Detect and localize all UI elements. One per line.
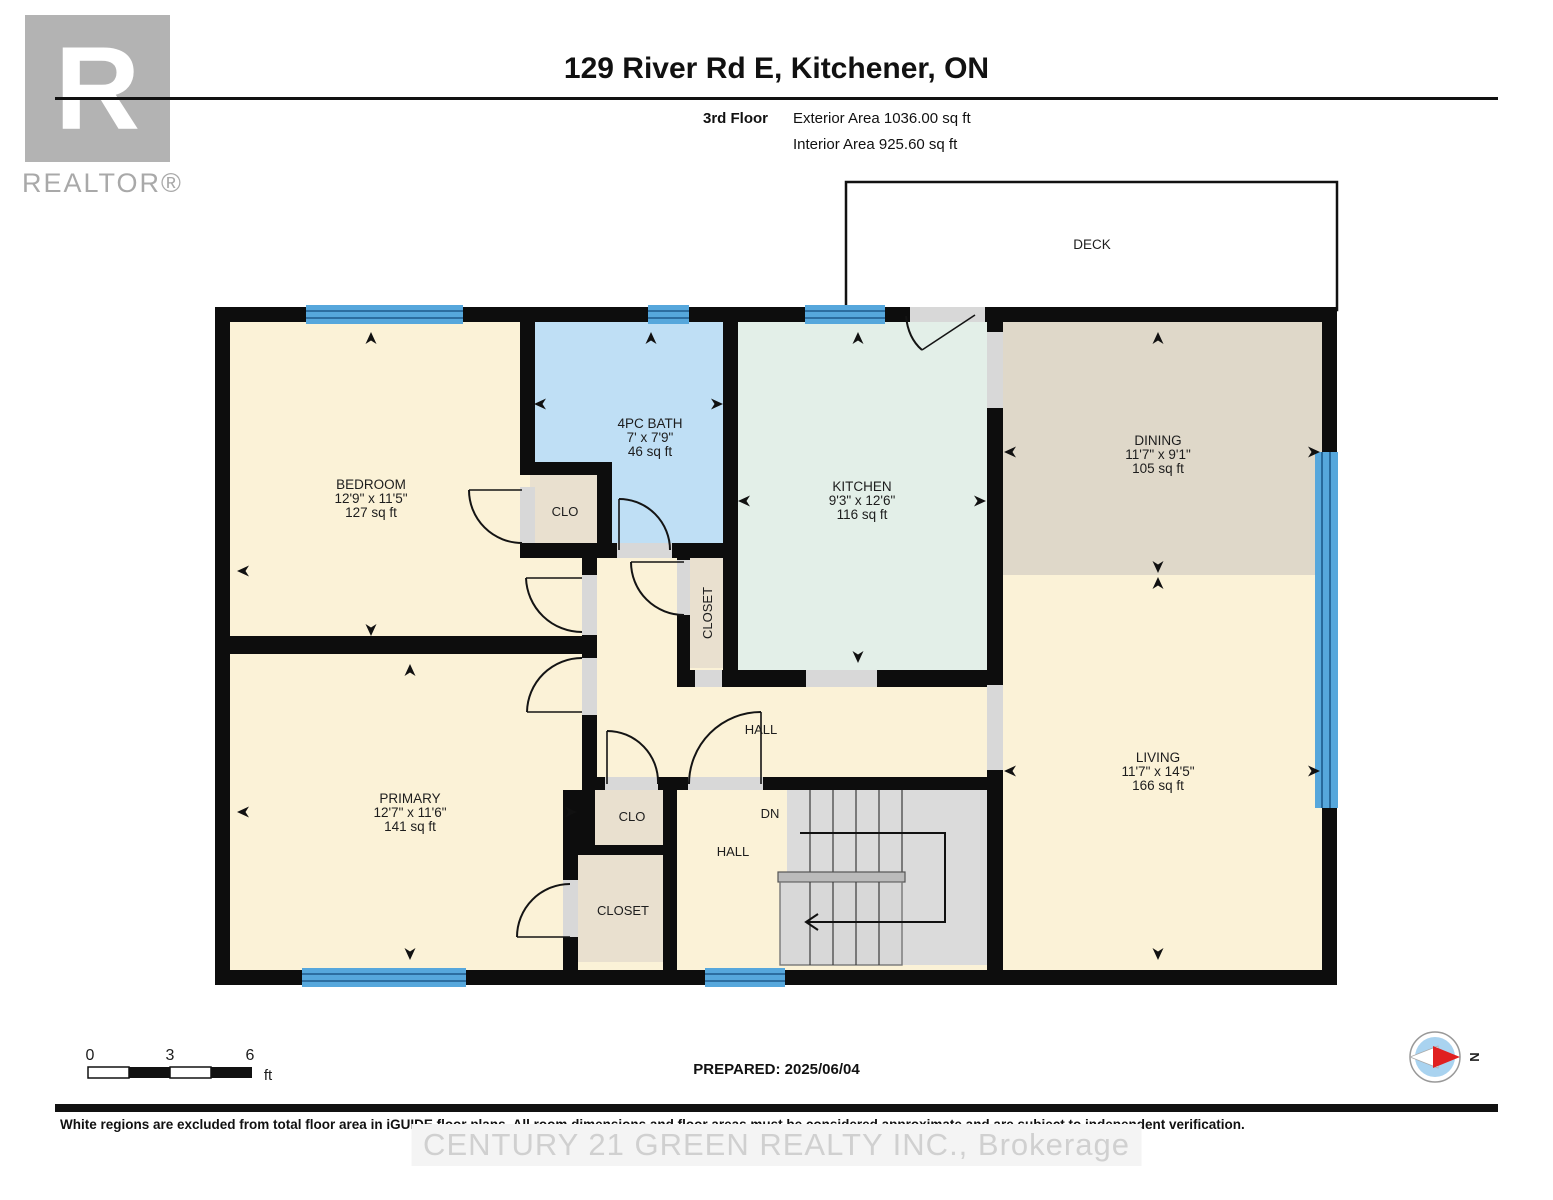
window-bath-top [648, 305, 689, 324]
deck-label: DECK [1073, 237, 1111, 252]
living-name: LIVING [1136, 750, 1180, 765]
hall-upper-label: HALL [745, 722, 778, 737]
window-right-side [1315, 452, 1338, 808]
dining-area: 105 sq ft [1132, 461, 1184, 476]
kitchen-dims: 9'3" x 12'6" [829, 493, 896, 508]
clo-upper-label: CLO [552, 504, 579, 519]
closet-lower-label: CLOSET [597, 903, 649, 918]
dining-name: DINING [1134, 433, 1181, 448]
deck: DECK [846, 182, 1337, 310]
bath-name: 4PC BATH [617, 416, 682, 431]
floor-plan-svg: DECK [0, 0, 1553, 1200]
primary-dims: 12'7" x 11'6" [373, 805, 446, 820]
primary-area: 141 sq ft [384, 819, 436, 834]
hall-lower-label: HALL [717, 844, 750, 859]
living-dims: 11'7" x 14'5" [1121, 764, 1194, 779]
kitchen-area: 116 sq ft [837, 507, 888, 522]
closet-vertical-label: CLOSET [700, 587, 715, 639]
bedroom-name: BEDROOM [336, 477, 406, 492]
dining-dims: 11'7" x 9'1" [1125, 447, 1191, 462]
window-bedroom-top [306, 305, 463, 324]
bedroom-dims: 12'9" x 11'5" [334, 491, 407, 506]
window-primary-bottom [302, 968, 466, 987]
staircase [778, 790, 988, 965]
living-area: 166 sq ft [1132, 778, 1184, 793]
kitchen-name: KITCHEN [832, 479, 891, 494]
brokerage-watermark: CENTURY 21 GREEN REALTY INC., Brokerage [411, 1124, 1142, 1166]
window-kitchen-top [805, 305, 885, 324]
bedroom-area: 127 sq ft [345, 505, 397, 520]
prepared-date: PREPARED: 2025/06/04 [0, 1061, 1553, 1078]
primary-name: PRIMARY [379, 791, 440, 806]
floor-plan-page: R REALTOR® 129 River Rd E, Kitchener, ON… [0, 0, 1553, 1200]
bath-area: 46 sq ft [628, 444, 673, 459]
clo-lower-label: CLO [619, 809, 646, 824]
footer-divider [55, 1104, 1498, 1112]
window-hall-bottom [705, 968, 785, 987]
dn-label: DN [761, 806, 780, 821]
bath-dims: 7' x 7'9" [627, 430, 674, 445]
